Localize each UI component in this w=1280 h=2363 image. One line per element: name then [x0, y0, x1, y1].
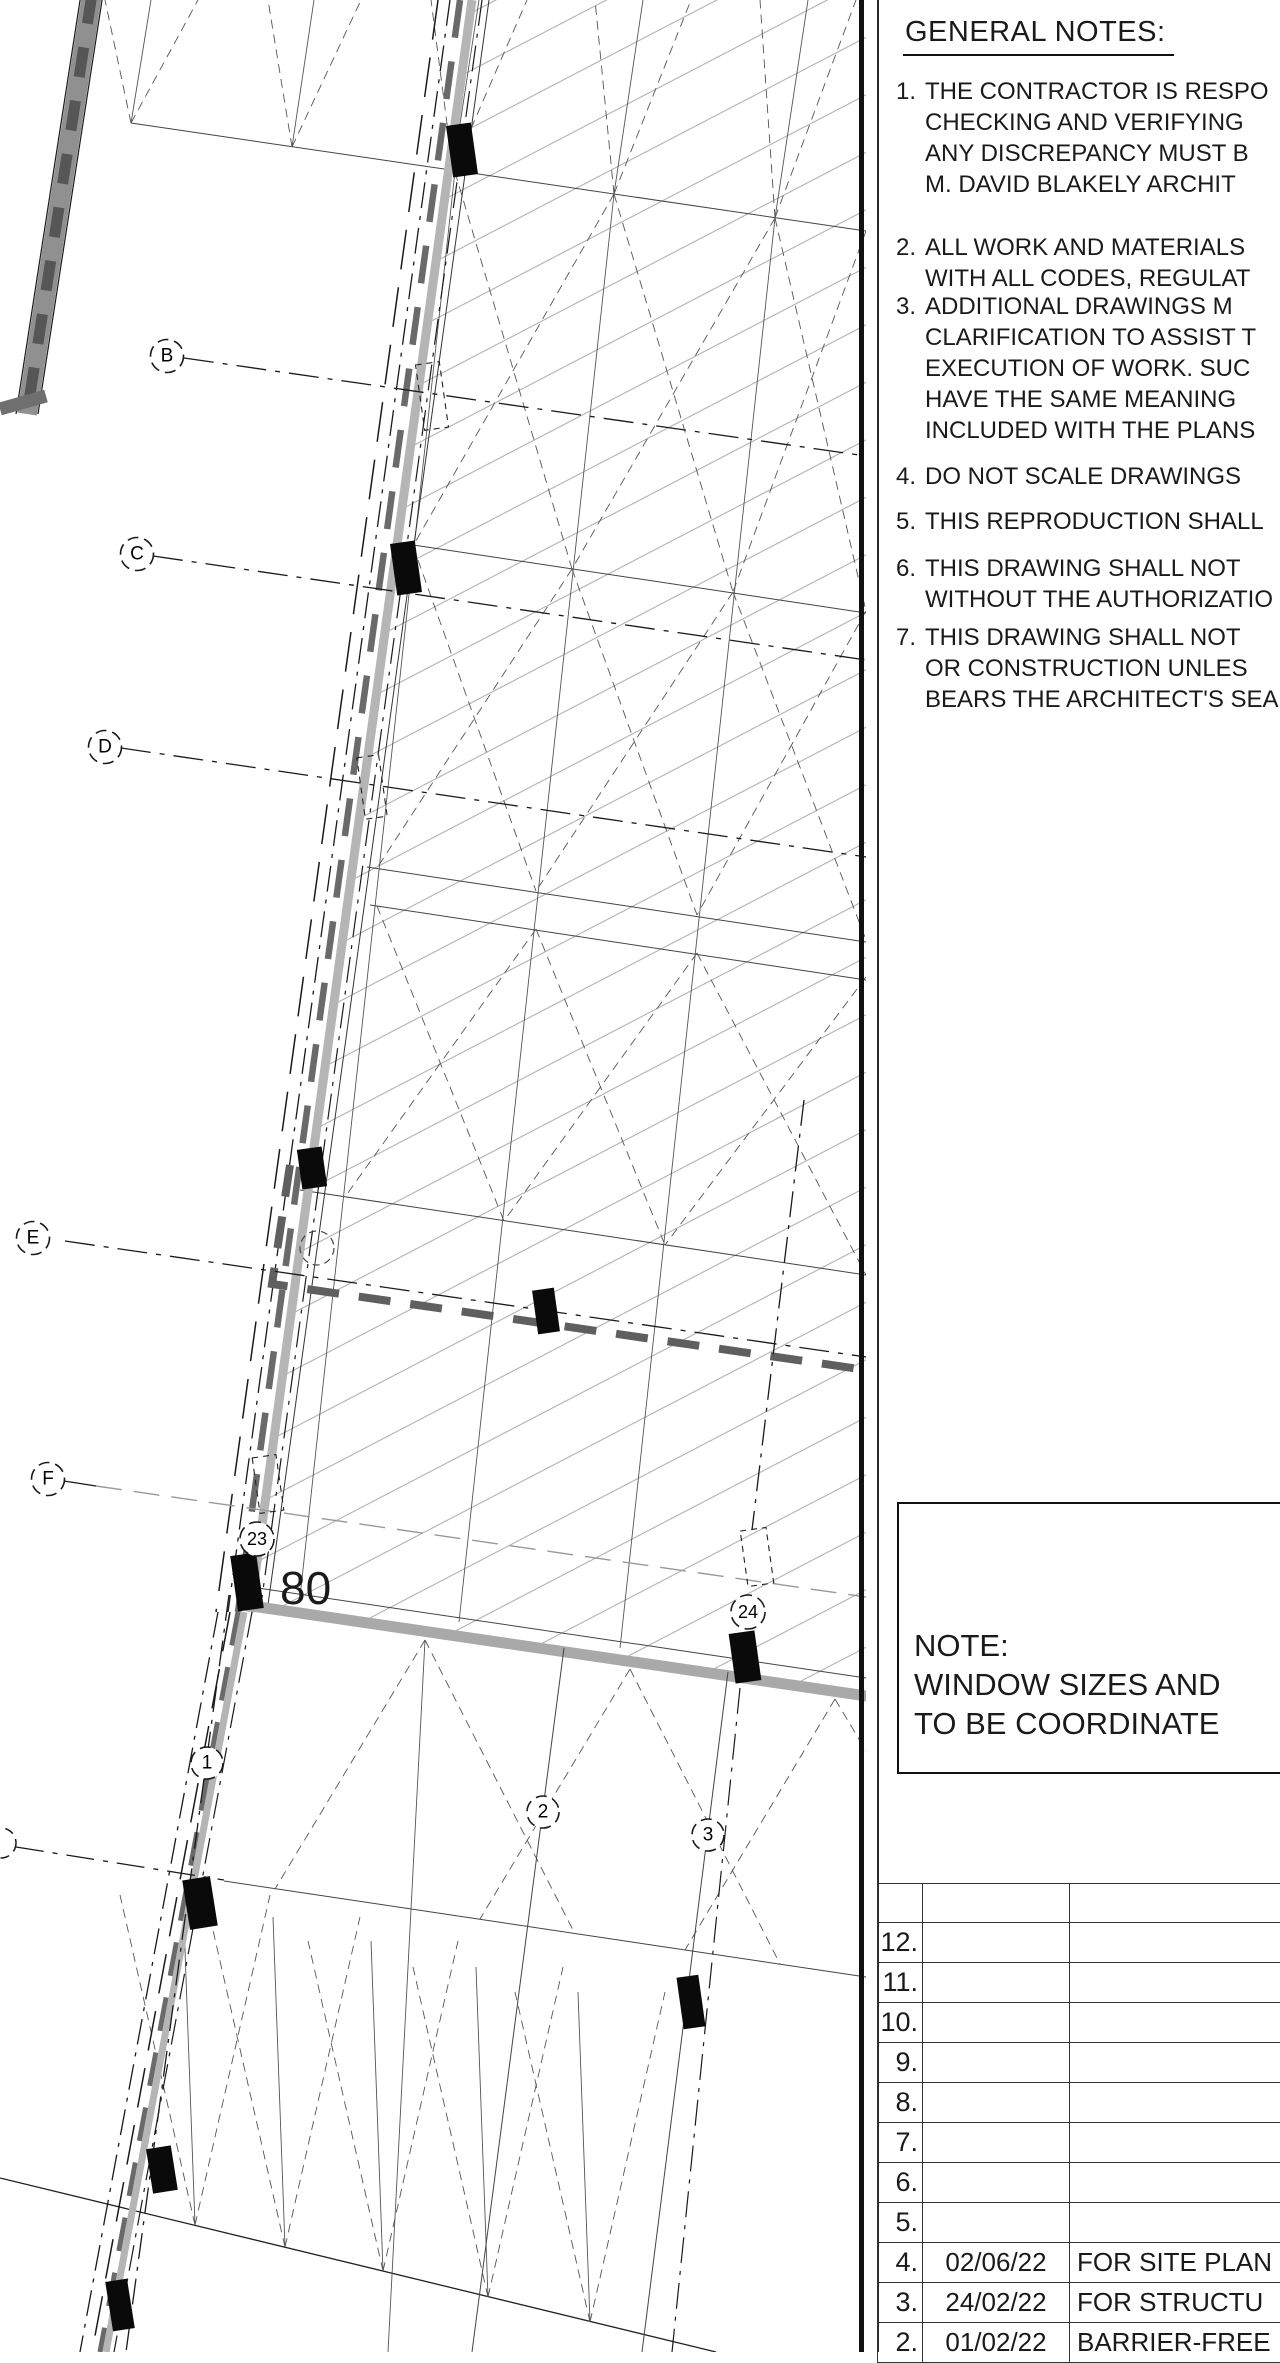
revision-date — [923, 2203, 1070, 2242]
note-line: INCLUDED WITH THE PLANS — [925, 415, 1256, 446]
note-box-line: WINDOW SIZES AND — [914, 1665, 1221, 1704]
grid-bubble-label: B — [161, 346, 174, 367]
grid-bubble-3: 3 — [692, 1819, 724, 1851]
revision-date — [923, 2123, 1070, 2162]
revision-desc — [1070, 2163, 1280, 2202]
note-number: 6. — [884, 553, 916, 615]
grid-bubble-edge — [0, 1828, 16, 1858]
grid-bubble-24: 24 — [731, 1595, 765, 1629]
window-note-box: NOTE: WINDOW SIZES AND TO BE COORDINATE — [897, 1502, 1280, 1774]
revision-table: 12. 11. 10. 9. 8. 7. 6. 5. 4. 02/06/ — [877, 1883, 1280, 2363]
revision-row: 5. — [878, 2203, 1280, 2243]
grid-bubble-label: 3 — [703, 1825, 714, 1846]
revision-date — [923, 1923, 1070, 1962]
revision-date: 01/02/22 — [923, 2323, 1070, 2362]
note-line: WITHOUT THE AUTHORIZATIO — [925, 584, 1273, 615]
revision-number: 4. — [878, 2243, 923, 2282]
revision-number: 11. — [878, 1963, 923, 2002]
note-number: 1. — [884, 76, 916, 200]
floor-plan: B C D E F 23 24 1 — [0, 0, 866, 2352]
note-line: THE CONTRACTOR IS RESPO — [925, 76, 1269, 107]
dimension-label-80: 80 — [280, 1562, 331, 1614]
note-line: CLARIFICATION TO ASSIST T — [925, 322, 1256, 353]
grid-bubble-label: E — [27, 1228, 40, 1249]
general-note-4: 4. DO NOT SCALE DRAWINGS — [884, 461, 1280, 492]
note-number: 7. — [884, 622, 916, 715]
truss-fans-lower — [120, 1640, 866, 2352]
revision-number: 5. — [878, 2203, 923, 2242]
main-wall-lower — [80, 1612, 252, 2352]
grid-bubble-23: 23 — [240, 1522, 274, 1556]
revision-number: 2. — [878, 2323, 923, 2362]
revision-desc — [1070, 2083, 1280, 2122]
note-line: M. DAVID BLAKELY ARCHIT — [925, 169, 1269, 200]
grid-bubble-B: B — [151, 340, 184, 373]
revision-row-header — [878, 1884, 1280, 1923]
revision-row: 9. — [878, 2043, 1280, 2083]
revision-row: 6. — [878, 2163, 1280, 2203]
grid-bubble-1: 1 — [191, 1747, 223, 1779]
revision-desc — [1070, 2003, 1280, 2042]
general-note-6: 6. THIS DRAWING SHALL NOT WITHOUT THE AU… — [884, 553, 1280, 615]
note-number: 5. — [884, 506, 916, 537]
revision-number: 10. — [878, 2003, 923, 2042]
revision-number — [878, 1884, 923, 1922]
revision-desc — [1070, 2123, 1280, 2162]
revision-desc — [1070, 1963, 1280, 2002]
grid-bubble-label: F — [42, 1469, 54, 1490]
general-note-5: 5. THIS REPRODUCTION SHALL — [884, 506, 1280, 537]
note-number: 4. — [884, 461, 916, 492]
note-line: BEARS THE ARCHITECT'S SEA — [925, 684, 1279, 715]
general-note-2: 2. ALL WORK AND MATERIALS WITH ALL CODES… — [884, 232, 1280, 294]
note-line: ALL WORK AND MATERIALS — [925, 232, 1250, 263]
revision-row: 8. — [878, 2083, 1280, 2123]
grid-bubble-F: F — [32, 1463, 65, 1496]
plan-border — [859, 0, 864, 2352]
revision-row: 4. 02/06/22 FOR SITE PLAN — [878, 2243, 1280, 2283]
note-box-line: TO BE COORDINATE — [914, 1704, 1221, 1743]
note-line: WITH ALL CODES, REGULAT — [925, 263, 1250, 294]
drawing-sheet: { "plan": { "bubbles": [ {"label": "B"},… — [0, 0, 1280, 2352]
revision-row: 2. 01/02/22 BARRIER-FREE — [878, 2323, 1280, 2363]
general-note-7: 7. THIS DRAWING SHALL NOT OR CONSTRUCTIO… — [884, 622, 1280, 715]
revision-desc — [1070, 2043, 1280, 2082]
revision-number: 12. — [878, 1923, 923, 1962]
note-box-line: NOTE: — [914, 1626, 1221, 1665]
revision-desc: FOR SITE PLAN — [1070, 2243, 1280, 2282]
revision-number: 3. — [878, 2283, 923, 2322]
revision-number: 6. — [878, 2163, 923, 2202]
revision-date — [923, 2043, 1070, 2082]
grid-bubble-label: 24 — [738, 1602, 758, 1622]
revision-number: 8. — [878, 2083, 923, 2122]
revision-date: 24/02/22 — [923, 2283, 1070, 2322]
revision-row: 3. 24/02/22 FOR STRUCTU — [878, 2283, 1280, 2323]
note-line: THIS DRAWING SHALL NOT — [925, 553, 1273, 584]
revision-row: 12. — [878, 1923, 1280, 1963]
revision-date — [923, 2163, 1070, 2202]
note-line: HAVE THE SAME MEANING — [925, 384, 1256, 415]
revision-desc — [1070, 1923, 1280, 1962]
revision-desc: FOR STRUCTU — [1070, 2283, 1280, 2322]
secondary-wall-band — [0, 0, 103, 414]
revision-desc — [1070, 1884, 1280, 1922]
revision-number: 7. — [878, 2123, 923, 2162]
note-line: DO NOT SCALE DRAWINGS — [925, 461, 1241, 492]
grid-bubble-2: 2 — [527, 1796, 559, 1828]
revision-date: 02/06/22 — [923, 2243, 1070, 2282]
hatch-zone — [252, 0, 866, 1698]
revision-desc — [1070, 2203, 1280, 2242]
note-line: THIS DRAWING SHALL NOT — [925, 622, 1279, 653]
grid-bubble-label: 1 — [202, 1753, 213, 1774]
note-number: 2. — [884, 232, 916, 294]
grid-bubble-E: E — [17, 1222, 50, 1255]
revision-date — [923, 2083, 1070, 2122]
revision-date — [923, 1884, 1070, 1922]
revision-number: 9. — [878, 2043, 923, 2082]
note-number: 3. — [884, 291, 916, 446]
revision-row: 10. — [878, 2003, 1280, 2043]
revision-date — [923, 2003, 1070, 2042]
grid-bubble-label: 2 — [538, 1802, 549, 1823]
note-line: ANY DISCREPANCY MUST B — [925, 138, 1269, 169]
general-note-3: 3. ADDITIONAL DRAWINGS M CLARIFICATION T… — [884, 291, 1280, 446]
grid-bubble-label: D — [98, 737, 112, 758]
note-line: ADDITIONAL DRAWINGS M — [925, 291, 1256, 322]
revision-date — [923, 1963, 1070, 2002]
general-notes-title: GENERAL NOTES: — [903, 16, 1174, 56]
note-line: THIS REPRODUCTION SHALL — [925, 506, 1264, 537]
note-line: CHECKING AND VERIFYING — [925, 107, 1269, 138]
note-line: OR CONSTRUCTION UNLES — [925, 653, 1279, 684]
general-note-1: 1. THE CONTRACTOR IS RESPO CHECKING AND … — [884, 76, 1280, 200]
note-line: EXECUTION OF WORK. SUC — [925, 353, 1256, 384]
grid-bubble-label: 23 — [247, 1529, 267, 1549]
revision-row: 7. — [878, 2123, 1280, 2163]
grid-bubble-C: C — [121, 538, 154, 571]
grid-line-F-stub — [64, 1481, 96, 1486]
revision-desc: BARRIER-FREE — [1070, 2323, 1280, 2362]
grid-bubble-D: D — [89, 731, 122, 764]
grid-bubble-label: C — [130, 544, 144, 565]
revision-row: 11. — [878, 1963, 1280, 2003]
